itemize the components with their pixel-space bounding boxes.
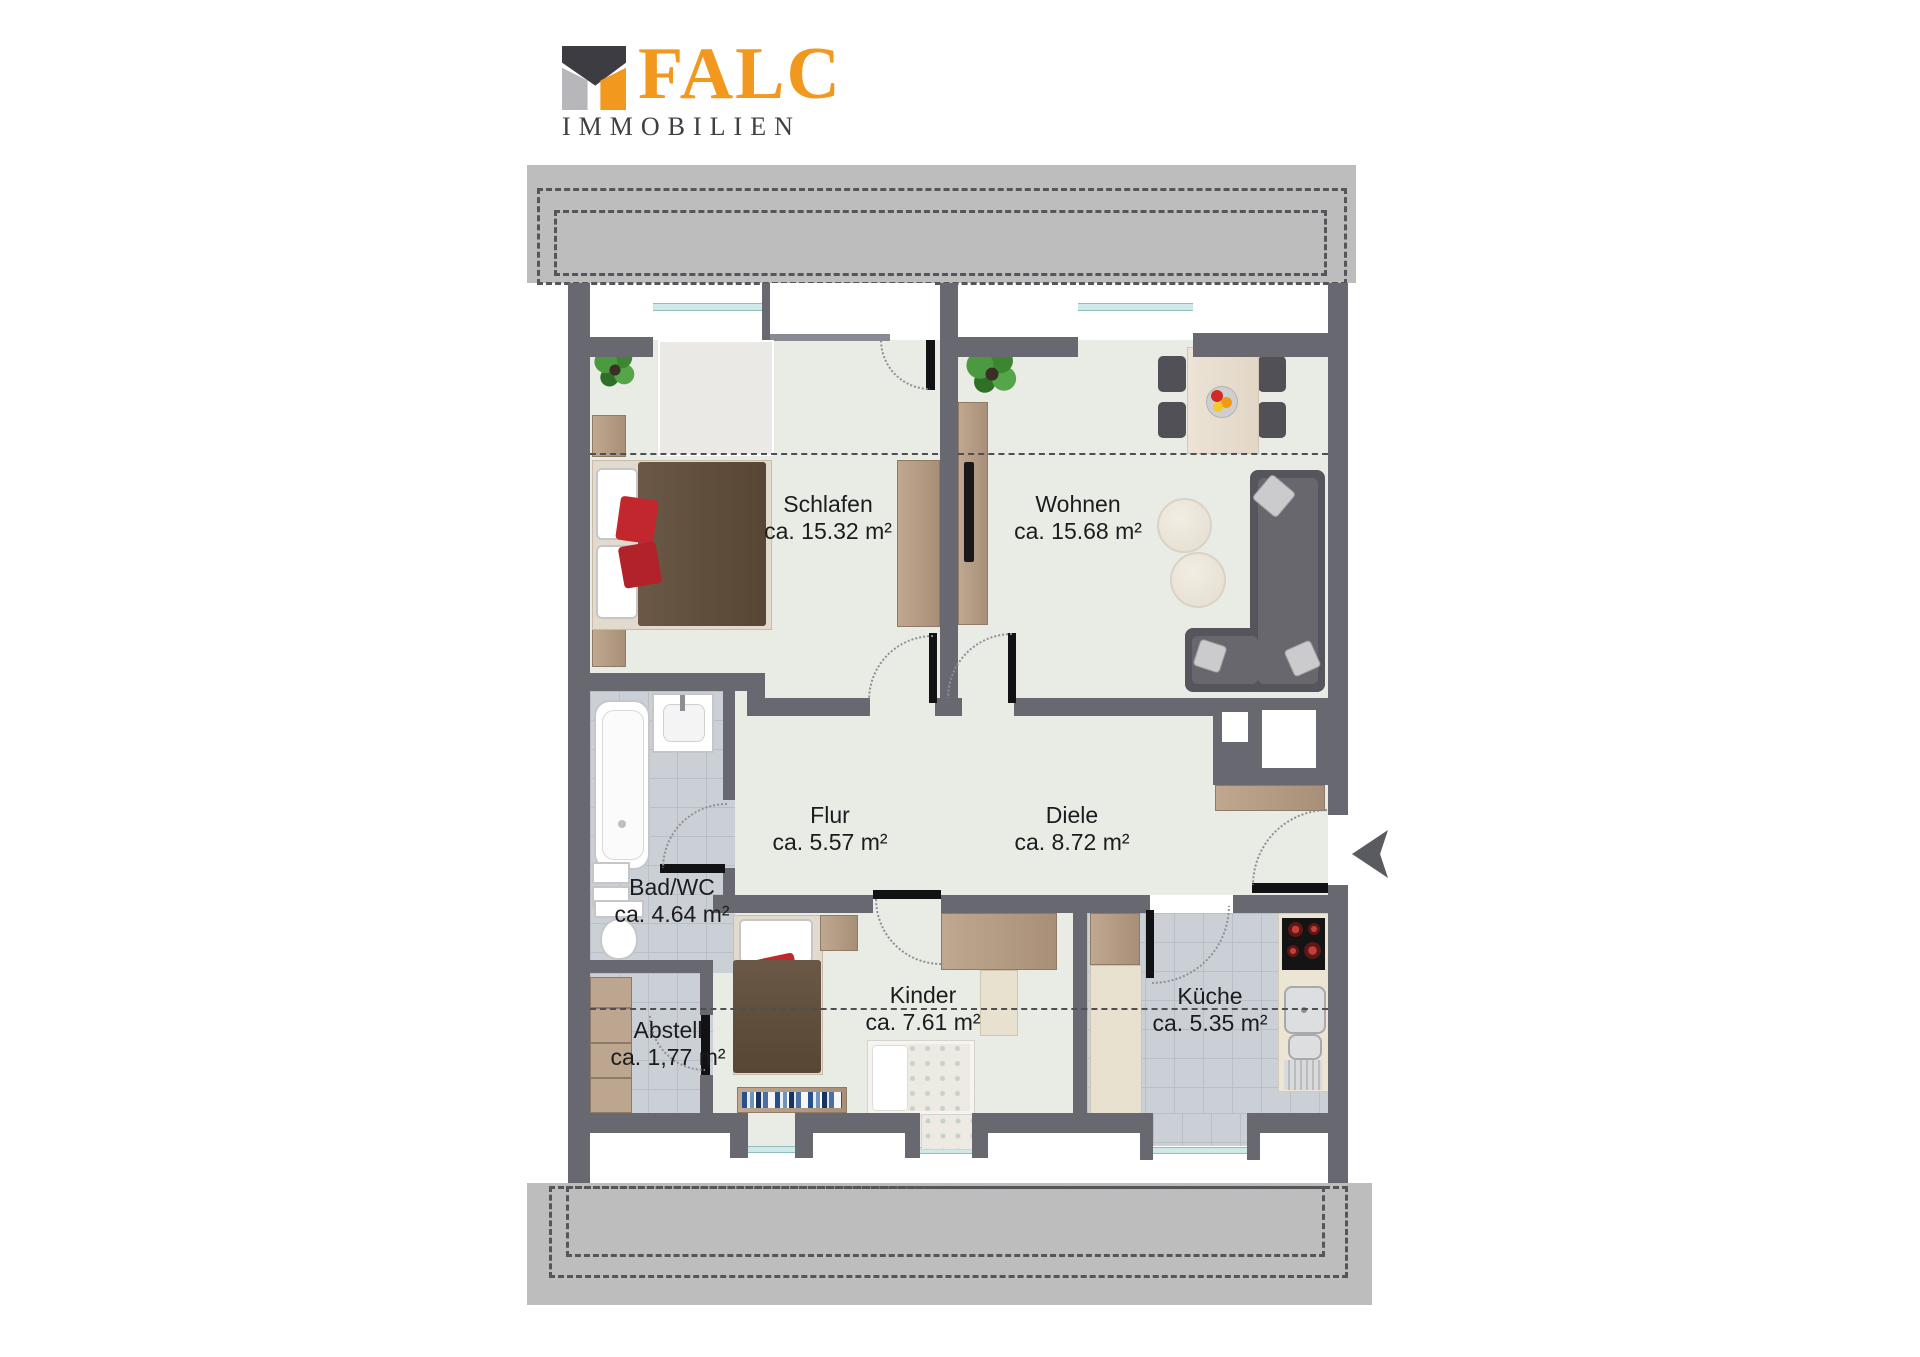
burner-icon (1288, 922, 1303, 937)
room-area: ca. 7.61 m² (865, 1009, 980, 1036)
schlafen-dormer-window (653, 303, 762, 311)
roof-slope-line (958, 453, 1328, 455)
tall-cabinet-top (1090, 913, 1140, 965)
chair (1258, 402, 1286, 438)
wall (1328, 885, 1348, 1183)
red-cushion (615, 496, 659, 545)
brand-name: FALC (638, 38, 842, 110)
kueche-dormer-floor (1153, 1113, 1247, 1146)
room-name: Flur (772, 802, 887, 829)
nightstand (592, 627, 626, 667)
loggia-recess (770, 283, 935, 335)
wall (723, 691, 735, 800)
bed-blanket (733, 960, 821, 1073)
guest-bed-extension (921, 1114, 973, 1150)
room-area: ca. 1,77 m² (610, 1044, 725, 1071)
floral-blanket (908, 1044, 970, 1111)
dormer-wall (795, 1113, 813, 1158)
desk (980, 970, 1018, 1036)
room-area: ca. 8.72 m² (1014, 829, 1129, 856)
dormer-wall (1247, 1113, 1260, 1160)
drainboard (1284, 1060, 1322, 1090)
room-name: Diele (1014, 802, 1129, 829)
loggia-parapet-wall (770, 334, 890, 341)
dormer-wall (972, 1113, 988, 1158)
room-area: ca. 5.35 m² (1152, 1010, 1267, 1037)
falc-logo-icon (562, 46, 626, 110)
bathtub-drain (618, 820, 626, 828)
red-cushion (618, 541, 663, 589)
kitchen-sink-small (1288, 1034, 1322, 1060)
wall (747, 673, 765, 716)
nightstand (592, 415, 626, 457)
wall (940, 283, 958, 716)
room-label-wohnen: Wohnen ca. 15.68 m² (1014, 491, 1142, 545)
room-area: ca. 5.57 m² (772, 829, 887, 856)
wall (1087, 895, 1150, 913)
guest-bed (867, 1040, 975, 1116)
dormer-wall (905, 1113, 920, 1158)
roof-dashed-outline-bottom-inner (566, 1186, 1325, 1257)
room-name: Küche (1152, 983, 1267, 1010)
kueche-dormer-window (1149, 1147, 1251, 1154)
round-side-table (1170, 552, 1226, 608)
dormer-wall (730, 1113, 748, 1158)
schlafen-dormer-recess (653, 295, 762, 340)
wall (713, 895, 873, 913)
wall (1328, 283, 1348, 815)
wall (1257, 1113, 1328, 1133)
bookshelf (737, 1087, 847, 1113)
books (742, 1092, 842, 1108)
tall-cabinet (1090, 965, 1142, 1115)
chair (1158, 356, 1186, 392)
wardrobe (941, 913, 1057, 970)
floor-plan-page: Schlafen ca. 15.32 m² Wohnen ca. 15.68 m… (0, 0, 1920, 1357)
wall (590, 673, 747, 691)
bed-pillow (872, 1045, 908, 1111)
wall (590, 960, 713, 973)
wall (762, 283, 770, 340)
wohnen-dormer-recess (1078, 295, 1193, 337)
entrance-opening (1328, 815, 1348, 885)
wall (988, 1113, 1140, 1133)
kinder-door (873, 890, 941, 899)
burner-icon (1308, 923, 1320, 935)
wall (958, 337, 1078, 357)
room-label-flur: Flur ca. 5.57 m² (772, 802, 887, 856)
roof-dashed-outline-top-inner (554, 210, 1327, 276)
fruit (1213, 402, 1223, 412)
wohnen-dormer-window (1078, 303, 1193, 311)
wardrobe (820, 915, 858, 951)
room-area: ca. 4.64 m² (614, 901, 729, 928)
wardrobe (897, 460, 940, 627)
room-area: ca. 15.32 m² (764, 518, 892, 545)
closet-cell (1262, 710, 1316, 768)
wall (700, 1075, 713, 1113)
room-name: Abstell (610, 1017, 725, 1044)
burner-icon (1287, 945, 1299, 957)
wall (1233, 895, 1328, 913)
room-name: Kinder (865, 982, 980, 1009)
sideboard (1215, 785, 1325, 811)
bed-blanket (638, 462, 766, 626)
room-label-kinder: Kinder ca. 7.61 m² (865, 982, 980, 1036)
burner-icon (1304, 942, 1321, 959)
bathtub (594, 700, 650, 870)
kitchen-sink (1284, 986, 1326, 1034)
bathtub-inner (602, 710, 644, 860)
chair (1258, 356, 1286, 392)
wall (568, 283, 590, 1183)
room-name: Schlafen (764, 491, 892, 518)
brand-subtitle: IMMOBILIEN (562, 112, 801, 142)
room-name: Wohnen (1014, 491, 1142, 518)
room-area: ca. 15.68 m² (1014, 518, 1142, 545)
kinder-dormer1-floor (748, 1113, 795, 1146)
wall (590, 1113, 730, 1133)
kinder-dormer1-window (744, 1146, 799, 1153)
room-label-abstell: Abstell ca. 1,77 m² (610, 1017, 725, 1071)
round-side-table (1157, 498, 1212, 553)
wall (590, 337, 653, 357)
faucet-icon (680, 695, 685, 711)
stove-icon (1282, 918, 1325, 970)
wash-basin (652, 693, 714, 753)
dormer-wall (1140, 1113, 1153, 1160)
wall (765, 698, 870, 716)
closet-cell (1222, 712, 1248, 742)
wall (935, 698, 962, 716)
room-name: Bad/WC (614, 874, 729, 901)
tv-board (964, 462, 974, 562)
roof-slope-line (590, 453, 938, 455)
roof-window-rect (658, 340, 774, 456)
room-label-bad: Bad/WC ca. 4.64 m² (614, 874, 729, 928)
wall (1073, 895, 1087, 1113)
entrance-arrow-icon (1352, 830, 1388, 878)
room-label-kueche: Küche ca. 5.35 m² (1152, 983, 1267, 1037)
wall (813, 1113, 905, 1133)
room-label-schlafen: Schlafen ca. 15.32 m² (764, 491, 892, 545)
room-label-diele: Diele ca. 8.72 m² (1014, 802, 1129, 856)
wall (941, 895, 1073, 913)
wall (1193, 333, 1328, 357)
chair (1158, 402, 1186, 438)
fruit-bowl (1206, 386, 1238, 418)
